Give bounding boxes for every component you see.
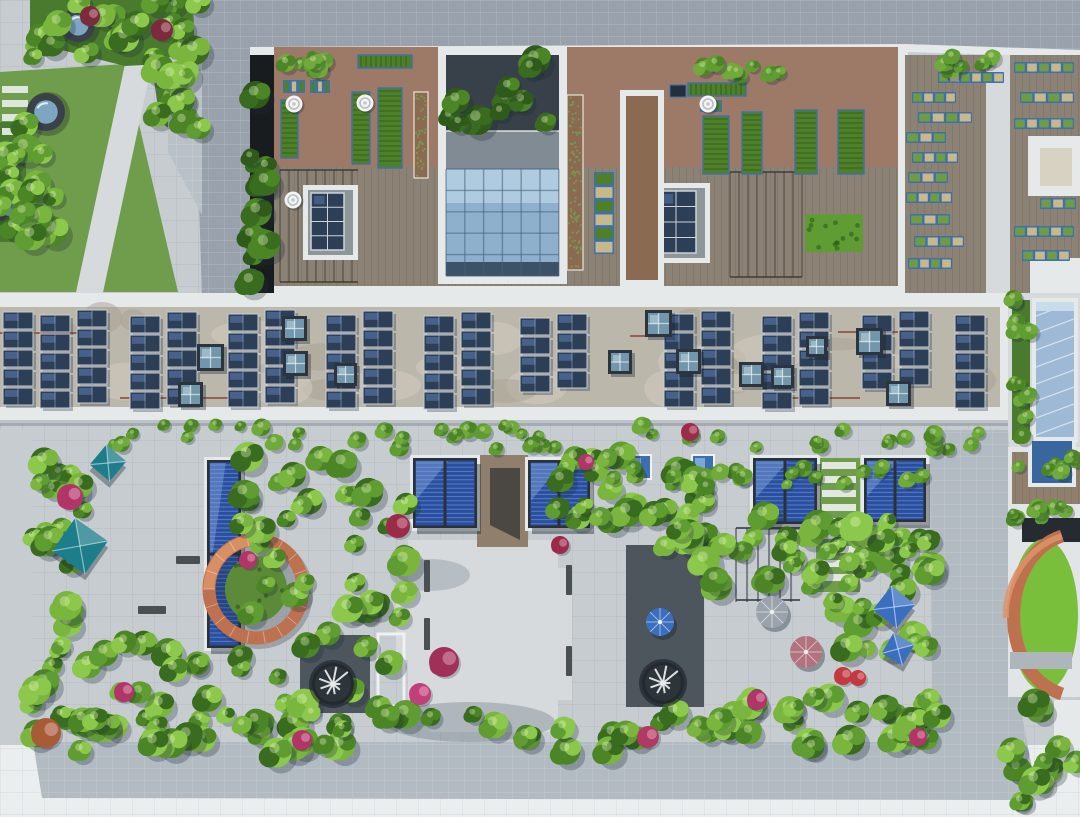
deck-white-path [986, 55, 1010, 293]
roof-top-band-grid [193, 0, 1080, 50]
rooftop-farm [274, 47, 908, 296]
deck-structure-roof [1040, 148, 1072, 186]
right-lightwell [620, 90, 664, 286]
aerial-photo: Top-down drone photograph of building ro… [0, 0, 1080, 817]
lightwell-soil [626, 96, 658, 280]
glass-run [1036, 302, 1074, 438]
atrium-slab [446, 131, 559, 169]
deck-white-structure-2 [1030, 258, 1080, 293]
solar-panel-roof [0, 293, 1012, 426]
right-deck-garden [905, 55, 1080, 293]
crescent-bridge [1010, 652, 1072, 669]
solar-parapet-top [0, 293, 1010, 307]
